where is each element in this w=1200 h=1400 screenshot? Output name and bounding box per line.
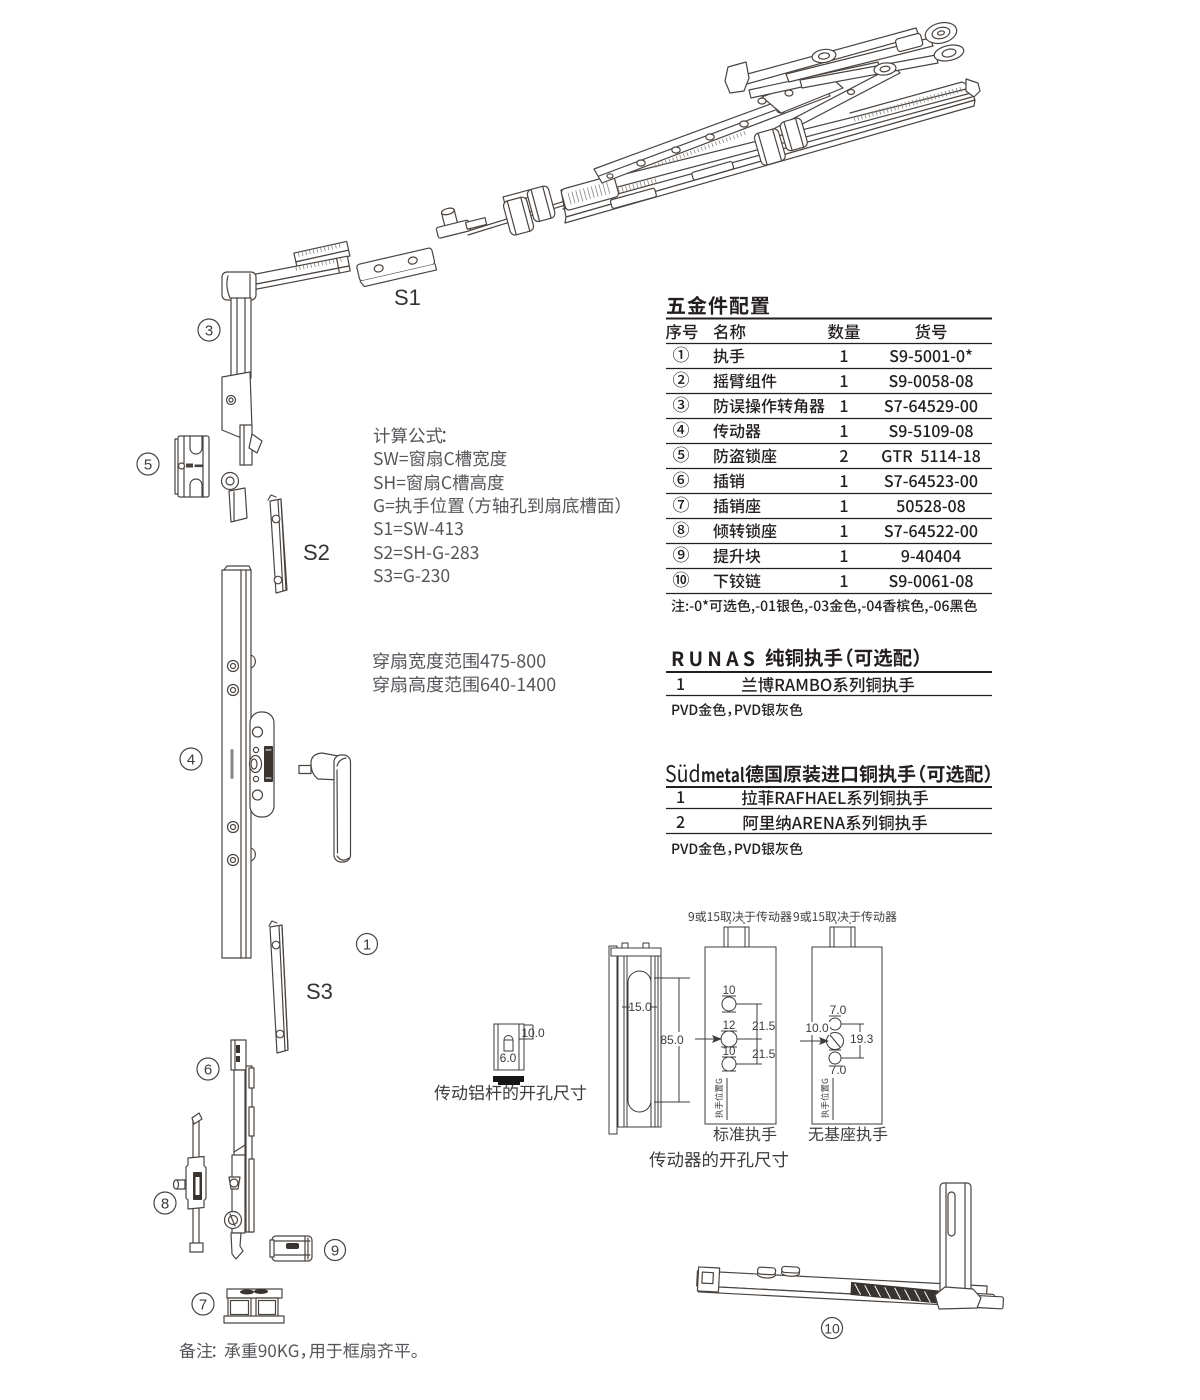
svg-text:5: 5 <box>144 457 152 474</box>
svg-text:4: 4 <box>187 752 195 769</box>
svg-text:S3: S3 <box>306 979 333 1004</box>
svg-text:S1: S1 <box>394 285 421 310</box>
svg-text:1: 1 <box>363 937 371 954</box>
svg-text:7: 7 <box>199 1297 207 1314</box>
svg-text:10: 10 <box>723 985 736 997</box>
svg-text:9: 9 <box>331 1243 339 1260</box>
svg-text:10.0: 10.0 <box>805 1021 829 1035</box>
svg-text:S2: S2 <box>303 540 330 565</box>
svg-text:8: 8 <box>161 1196 169 1213</box>
svg-text:7.0: 7.0 <box>830 1003 847 1017</box>
svg-text:12: 12 <box>723 1020 736 1032</box>
svg-text:21.5: 21.5 <box>752 1019 776 1033</box>
svg-text:3: 3 <box>205 323 213 340</box>
svg-text:21.5: 21.5 <box>752 1047 776 1061</box>
svg-text:10.0: 10.0 <box>521 1026 545 1040</box>
svg-text:15.0: 15.0 <box>628 1000 652 1014</box>
svg-text:10: 10 <box>824 1321 840 1337</box>
svg-text:7.0: 7.0 <box>830 1063 847 1077</box>
svg-text:10: 10 <box>723 1046 736 1058</box>
svg-text:85.0: 85.0 <box>660 1033 684 1047</box>
svg-text:19.3: 19.3 <box>850 1032 874 1046</box>
svg-text:6.0: 6.0 <box>500 1051 517 1065</box>
svg-text:6: 6 <box>204 1062 212 1079</box>
